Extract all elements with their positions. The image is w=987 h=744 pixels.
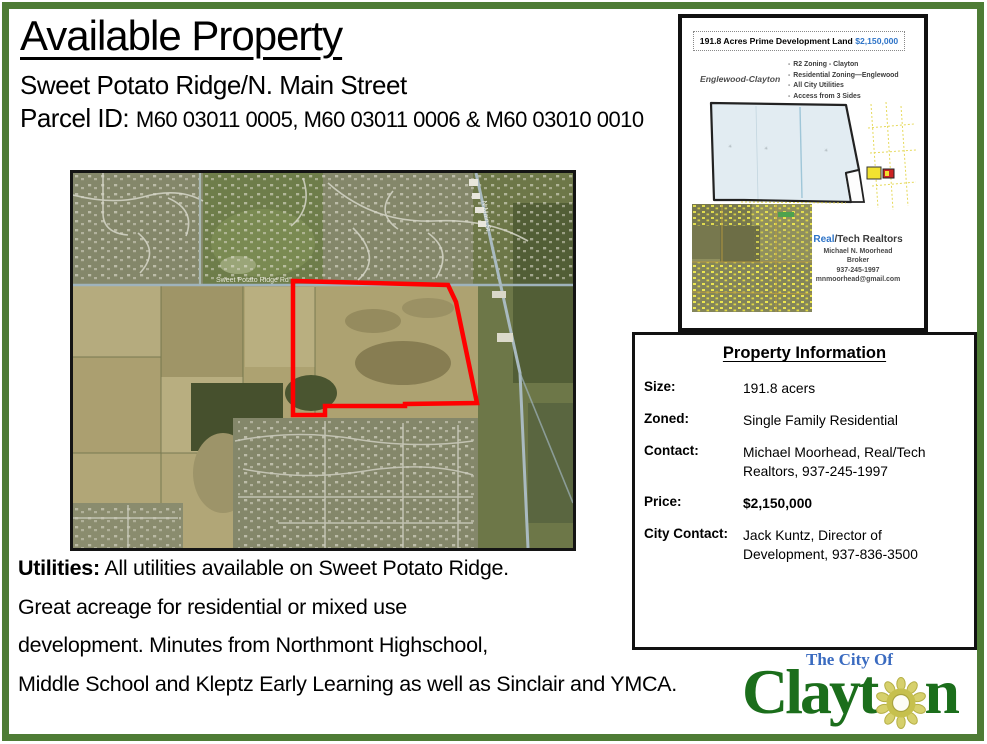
road-label-sweet-potato-ridge: Sweet Potato Ridge Rd bbox=[216, 277, 289, 284]
aerial-map: Sweet Potato Ridge Rd N Main St bbox=[70, 170, 576, 551]
aerial-map-graphic: Sweet Potato Ridge Rd N Main St bbox=[73, 173, 573, 548]
parcel-id-line: Parcel ID: M60 03011 0005, M60 03011 000… bbox=[20, 102, 656, 136]
realtor-title: Broker bbox=[810, 257, 906, 264]
realtor-name: Real/Tech Realtors bbox=[810, 234, 906, 245]
utilities-label: Utilities: bbox=[18, 556, 100, 580]
logo-tagline: The City Of bbox=[806, 650, 893, 670]
property-info-row-city-contact: City Contact: Jack Kuntz, Director of De… bbox=[644, 526, 966, 564]
flyer-thumbnail: 191.8 Acres Prime Development Land $2,15… bbox=[678, 14, 928, 332]
utilities-line-1: Utilities: All utilities available on Sw… bbox=[18, 549, 677, 588]
city-of-clayton-logo: The City Of Clayt n bbox=[742, 648, 984, 740]
flyer-page: Available Property Sweet Potato Ridge/N.… bbox=[0, 0, 987, 744]
property-info-rows: Size: 191.8 acers Zoned: Single Family R… bbox=[644, 379, 966, 564]
property-info-row-contact: Contact: Michael Moorhead, Real/Tech Rea… bbox=[644, 443, 966, 481]
utilities-line-3: development. Minutes from Northmont High… bbox=[18, 626, 677, 665]
property-info-row-zoned: Zoned: Single Family Residential bbox=[644, 411, 966, 430]
realtor-email: mnmoorhead@gmail.com bbox=[810, 276, 906, 283]
thumbnail-bullet: All City Utilities bbox=[788, 81, 899, 92]
property-info-title: Property Information bbox=[635, 344, 974, 363]
parcel-id-label: Parcel ID: bbox=[20, 103, 136, 133]
thumbnail-price: $2,150,000 bbox=[855, 36, 898, 46]
svg-text:✳: ✳ bbox=[764, 146, 768, 152]
property-info-box: Property Information Size: 191.8 acers Z… bbox=[632, 332, 977, 650]
utilities-paragraph: Utilities: All utilities available on Sw… bbox=[18, 549, 677, 703]
property-info-row-size: Size: 191.8 acers bbox=[644, 379, 966, 398]
thumbnail-region-label: Englewood-Clayton bbox=[700, 74, 780, 84]
realtor-phone: 937-245-1997 bbox=[810, 267, 906, 274]
parcel-id-values: M60 03011 0005, M60 03011 0006 & M60 030… bbox=[136, 107, 644, 132]
thumbnail-bullet: R2 Zoning - Clayton bbox=[788, 60, 899, 71]
utilities-line-2: Great acreage for residential or mixed u… bbox=[18, 588, 677, 627]
realtor-block: Real/Tech Realtors Michael N. Moorhead B… bbox=[810, 234, 906, 283]
thumbnail-aerial-photo bbox=[692, 204, 812, 312]
page-title: Available Property bbox=[20, 12, 342, 60]
svg-text:✳: ✳ bbox=[728, 144, 732, 150]
realtor-agent: Michael N. Moorhead bbox=[810, 248, 906, 255]
property-subtitle: Sweet Potato Ridge/N. Main Street bbox=[20, 70, 407, 101]
logo-text-n: n bbox=[924, 656, 957, 728]
sun-icon bbox=[875, 677, 927, 729]
utilities-line-4: Middle School and Kleptz Early Learning … bbox=[18, 665, 677, 704]
thumbnail-bullet-list: R2 Zoning - Clayton Residential Zoning—E… bbox=[788, 60, 899, 102]
svg-text:✳: ✳ bbox=[824, 148, 828, 154]
property-info-row-price: Price: $2,150,000 bbox=[644, 494, 966, 513]
thumbnail-headline: 191.8 Acres Prime Development Land $2,15… bbox=[693, 31, 905, 51]
thumbnail-bullet: Residential Zoning—Englewood bbox=[788, 71, 899, 82]
